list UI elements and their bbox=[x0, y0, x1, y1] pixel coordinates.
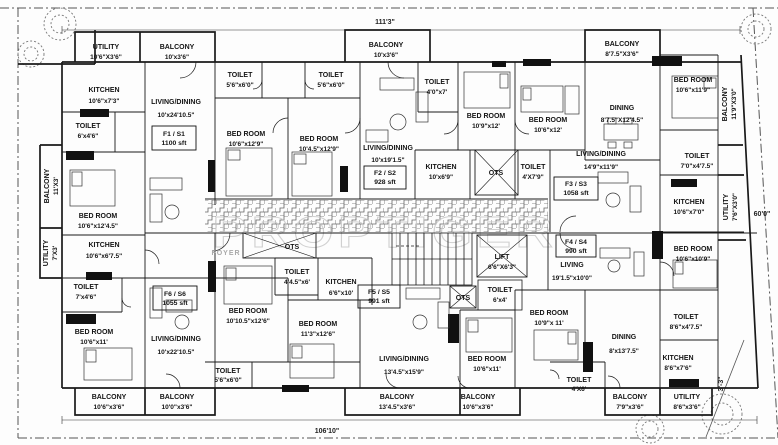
room-label-kitchen-f3: KITCHEN10'6"x7'0" bbox=[673, 199, 704, 216]
room-label-toilet-f3b: TOILET7'0"x4'7.5" bbox=[681, 153, 714, 170]
room-label-bed-f3b: BED ROOM10'6"x11'9" bbox=[674, 77, 713, 94]
room-label-balcony-b5: BALCONY7'9"x3'6" bbox=[613, 394, 648, 411]
room-label-balcony-tl: BALCONY10'x3'6" bbox=[160, 44, 195, 61]
room-label-balcony-b2: BALCONY10'0"x3'6" bbox=[160, 394, 195, 411]
room-label-bed-f2: BED ROOM10'9"x12' bbox=[467, 113, 506, 130]
room-label-dining-f4: DINING8'x13'7.5" bbox=[609, 334, 639, 355]
room-label-balcony-r: BALCONY11'9"X3'0" bbox=[722, 86, 738, 121]
room-label-toilet-b: TOILET5'6"x6'0" bbox=[214, 368, 241, 384]
room-label-utility-r: UTILITY7'6"X3'0" bbox=[723, 193, 739, 221]
room-label-living-f4: LIVING19'1.5"x10'0" bbox=[552, 262, 592, 282]
room-label-bed-f1a: BED ROOM10'6"x12'9" bbox=[227, 131, 266, 148]
dimension-bottom: 106'10" bbox=[315, 428, 339, 435]
flat-f5-label: F5 / S5991 sft bbox=[368, 289, 390, 305]
room-label-balcony-b3: BALCONY13'4.5"x3'6" bbox=[379, 394, 415, 411]
room-label-balcony-b4: BALCONY10'6"x3'6" bbox=[461, 394, 496, 411]
room-label-toilet-f6: TOILET7'x4'6" bbox=[74, 284, 99, 301]
room-label-balcony-tc: BALCONY10'x3'6" bbox=[369, 42, 404, 59]
foyer-label: FOYER bbox=[211, 250, 240, 257]
room-label-bed-f3a: BED ROOM10'6"x12' bbox=[529, 117, 568, 134]
dimension-right: 60'0" bbox=[754, 211, 771, 218]
room-label-kitchen-f5: KITCHEN6'6"x10' bbox=[325, 279, 356, 297]
flat-f6-label: F6 / S61055 sft bbox=[162, 291, 188, 307]
room-label-bed-l: BED ROOM10'6"x12'4.5" bbox=[78, 213, 118, 230]
dimension-top: 111'3" bbox=[375, 19, 395, 26]
room-label-toilet-f2a: TOILET5'6"x6'0" bbox=[317, 72, 344, 89]
ots-label-f5: OTS bbox=[456, 295, 471, 302]
room-label-toilet-f5a: TOILET4'4.5"x6' bbox=[284, 269, 311, 286]
room-label-toilet-f2b: TOILET4'0"x7' bbox=[425, 79, 450, 96]
floor-plan: PROPTIGER bbox=[0, 0, 778, 445]
room-label-toilet-f3a: TOILET4'X7'9" bbox=[521, 164, 546, 181]
room-label-bed-f4b: BED ROOM10'9"x 11' bbox=[530, 310, 569, 327]
room-label-kitchen-f2: KITCHEN10'x6'9" bbox=[425, 164, 456, 181]
room-label-living-f6: LIVING/DINING10'x22'10.5" bbox=[151, 336, 201, 356]
room-label-bed-f5b: BED ROOM10'6"x11' bbox=[468, 356, 507, 373]
floor-plan-drawing: PROPTIGER bbox=[0, 0, 778, 445]
room-label-kitchen-f1: KITCHEN10'6"x7'3" bbox=[88, 87, 119, 105]
dimension-corner: 3'-3" bbox=[718, 376, 725, 391]
room-label-bed-f6b: BED ROOM10'10.5"x12'6" bbox=[226, 308, 270, 325]
room-label-toilet-f5b: TOILET6'x4' bbox=[488, 287, 513, 304]
ots-label-center: OTS bbox=[489, 170, 504, 177]
room-label-balcony-l: BALCONY11'X3' bbox=[44, 168, 60, 203]
room-label-toilet-f1b: TOILET5'6"x6'0" bbox=[226, 72, 253, 89]
room-label-toilet-f1a: TOILET6'x4'6" bbox=[76, 123, 101, 140]
room-label-living-f3: LIVING/DINING14'9"x11'9" bbox=[576, 151, 626, 171]
room-label-utility-l: UTILITY7'X3' bbox=[43, 239, 59, 266]
watermark-text: PROPTIGER bbox=[213, 208, 558, 257]
room-label-living-f2: LIVING/DINING10'x19'1.5" bbox=[363, 145, 413, 164]
flat-f1-label: F1 / S11100 sft bbox=[162, 131, 188, 147]
room-label-bed-f5a: BED ROOM11'3"x12'6" bbox=[299, 321, 338, 338]
room-label-balcony-b1: BALCONY10'6"x3'6" bbox=[92, 394, 127, 411]
room-label-bed-f6a: BED ROOM10'6"x11' bbox=[75, 329, 114, 346]
room-label-toilet-f4a: TOILET8'6"x4'7.5" bbox=[670, 314, 703, 331]
room-label-bed-f4a: BED ROOM10'6"x10'9" bbox=[674, 246, 713, 263]
room-label-kitchen-f6: KITCHEN10'6"x6'7.5" bbox=[86, 242, 122, 260]
room-label-dining-f3: DINING8'7.5"X12'4.5" bbox=[601, 105, 644, 124]
room-label-toilet-f4b: TOILET4'X6' bbox=[567, 377, 592, 393]
room-label-utility-b: UTILITY8'6"x3'6" bbox=[673, 394, 700, 411]
room-label-balcony-tr: BALCONY8'7.5"X3'6" bbox=[605, 41, 640, 58]
room-label-kitchen-f4: KITCHEN8'6"x7'6" bbox=[662, 355, 693, 372]
room-label-living-f1: LIVING/DINING10'x24'10.5" bbox=[151, 99, 201, 119]
flat-f2-label: F2 / S2928 sft bbox=[374, 170, 396, 186]
ots-label-left: OTS bbox=[285, 244, 300, 251]
room-label-living-f5: LIVING/DINING13'4.5"x15'9" bbox=[379, 356, 429, 376]
flat-f3-label: F3 / S31058 sft bbox=[563, 181, 589, 197]
room-label-bed-f1b: BED ROOM10'4.5"x12'9" bbox=[299, 136, 339, 153]
